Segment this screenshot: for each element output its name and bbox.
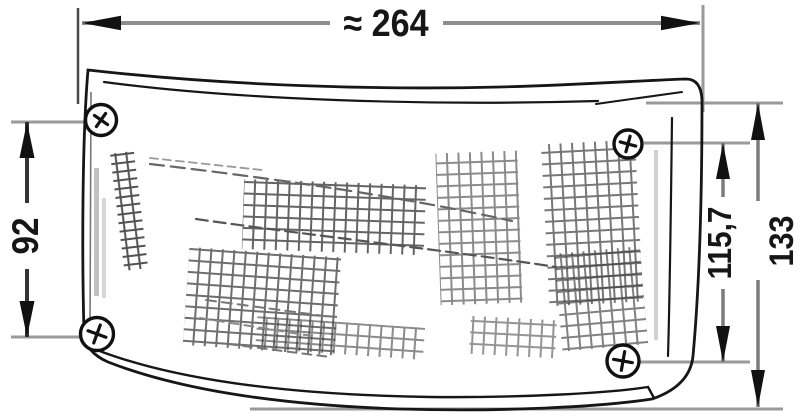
lens-texture (110, 140, 648, 360)
arrow-up-icon (716, 143, 730, 179)
lamp-technical-drawing: ≈ 264 92 115,7 133 (0, 0, 800, 419)
dimension-left-height: 92 (5, 122, 46, 337)
lamp-inner-rim-bottom (97, 350, 654, 398)
dim-width-label: ≈ 264 (343, 1, 428, 44)
dimension-right-outer-height: 133 (751, 103, 800, 407)
technical-drawing-canvas: ≈ 264 92 115,7 133 (0, 0, 800, 419)
screw-icon-bottom-right (607, 345, 639, 377)
dimension-width: ≈ 264 (82, 1, 700, 44)
arrow-down-icon (20, 301, 35, 337)
arrow-down-icon (751, 370, 765, 407)
arrow-left-icon (82, 16, 121, 30)
screw-icon-top-left (86, 105, 117, 136)
dim-right-inner-label: 115,7 (702, 207, 739, 280)
lamp-body (81, 70, 703, 410)
screw-icon-top-right (614, 130, 642, 158)
arrow-down-icon (716, 326, 730, 362)
dim-right-outer-label: 133 (763, 215, 800, 266)
arrow-up-icon (20, 122, 35, 158)
screw-icon-bottom-left (81, 318, 114, 351)
lamp-inner-rim-right (668, 118, 672, 356)
arrow-up-icon (751, 103, 765, 140)
arrow-right-icon (661, 16, 700, 30)
dim-left-height-label: 92 (5, 217, 46, 254)
dimension-right-inner-height: 115,7 (702, 143, 739, 362)
